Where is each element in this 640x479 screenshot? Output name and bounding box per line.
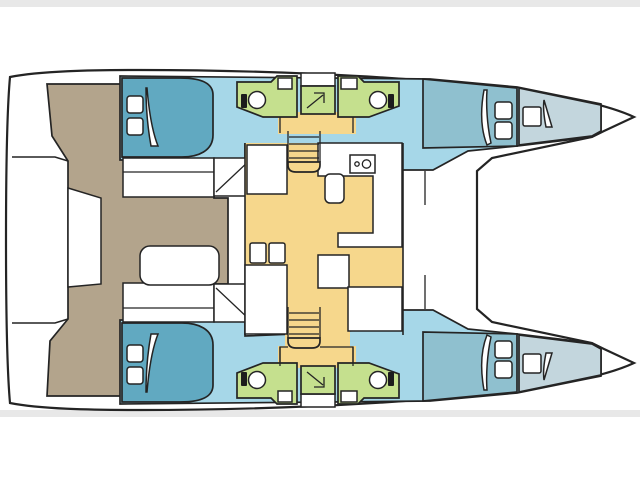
stair-landing	[288, 338, 320, 348]
toilet-icon	[249, 92, 266, 109]
pillow-icon	[495, 122, 512, 139]
salon-sofa	[245, 265, 287, 334]
stool	[250, 243, 266, 263]
staircase-port	[288, 131, 320, 172]
pillow-icon	[495, 102, 512, 119]
toilet-icon	[370, 92, 387, 109]
sink-icon	[278, 78, 292, 89]
stair-landing	[288, 162, 320, 172]
frame-bar-top	[0, 0, 640, 7]
salon-table	[318, 255, 349, 288]
toilet-tank-icon	[241, 94, 247, 108]
deck-plan-svg	[0, 0, 640, 479]
salon-seat-fwd	[348, 287, 402, 331]
frame-bar-bottom	[0, 410, 640, 417]
galley-sink-icon	[325, 174, 344, 203]
nav-seat	[247, 145, 287, 194]
cockpit-step-notch	[68, 188, 101, 287]
stool	[269, 243, 285, 263]
pillow-icon	[127, 96, 143, 113]
companionway-panel	[301, 86, 335, 114]
catamaran-deck-plan	[0, 0, 640, 479]
companionway-hatch	[301, 73, 335, 86]
cockpit-table	[140, 246, 219, 285]
cockpit-bench	[123, 158, 214, 197]
pillow-icon	[127, 118, 143, 135]
bow-hatch-icon	[523, 107, 541, 126]
sink-icon	[341, 78, 357, 89]
staircase-starboard	[288, 307, 320, 348]
toilet-tank-icon	[388, 94, 394, 108]
